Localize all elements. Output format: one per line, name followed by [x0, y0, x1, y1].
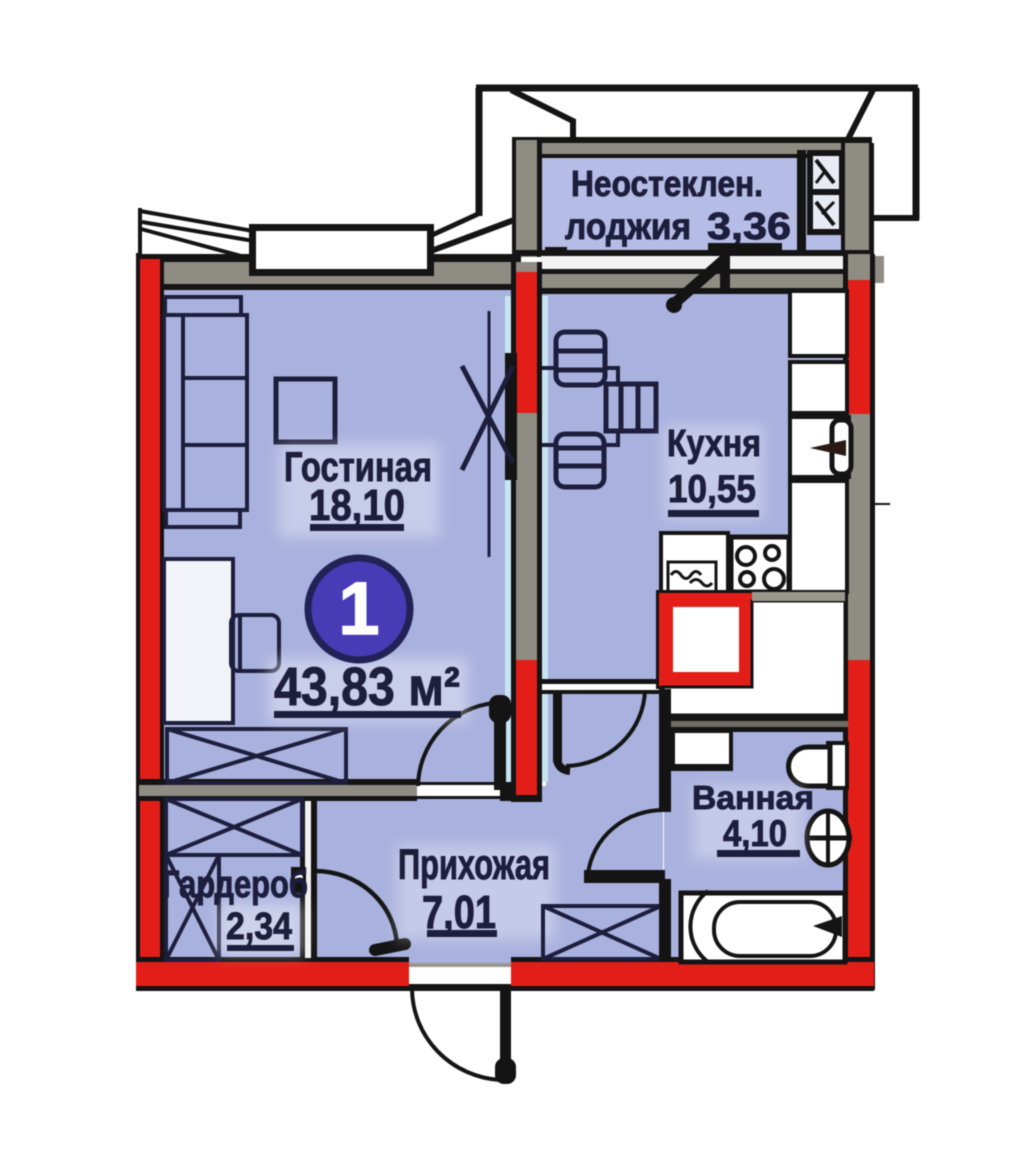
svg-text:Неостеклен.: Неостеклен. [571, 163, 763, 204]
svg-text:Прихожая: Прихожая [398, 841, 550, 889]
svg-text:10,55: 10,55 [668, 468, 756, 511]
svg-text:43,83 м²: 43,83 м² [274, 657, 460, 717]
svg-text:2,34: 2,34 [226, 906, 292, 948]
svg-text:1: 1 [338, 567, 379, 650]
svg-text:4,10: 4,10 [723, 813, 787, 854]
svg-text:Кухня: Кухня [667, 423, 761, 465]
svg-text:18,10: 18,10 [309, 481, 405, 530]
svg-text:лоджия: лоджия [565, 206, 691, 247]
svg-text:Гардероб: Гардероб [162, 864, 308, 906]
svg-text:3,36: 3,36 [707, 206, 791, 248]
svg-text:Ванная: Ванная [692, 779, 814, 816]
